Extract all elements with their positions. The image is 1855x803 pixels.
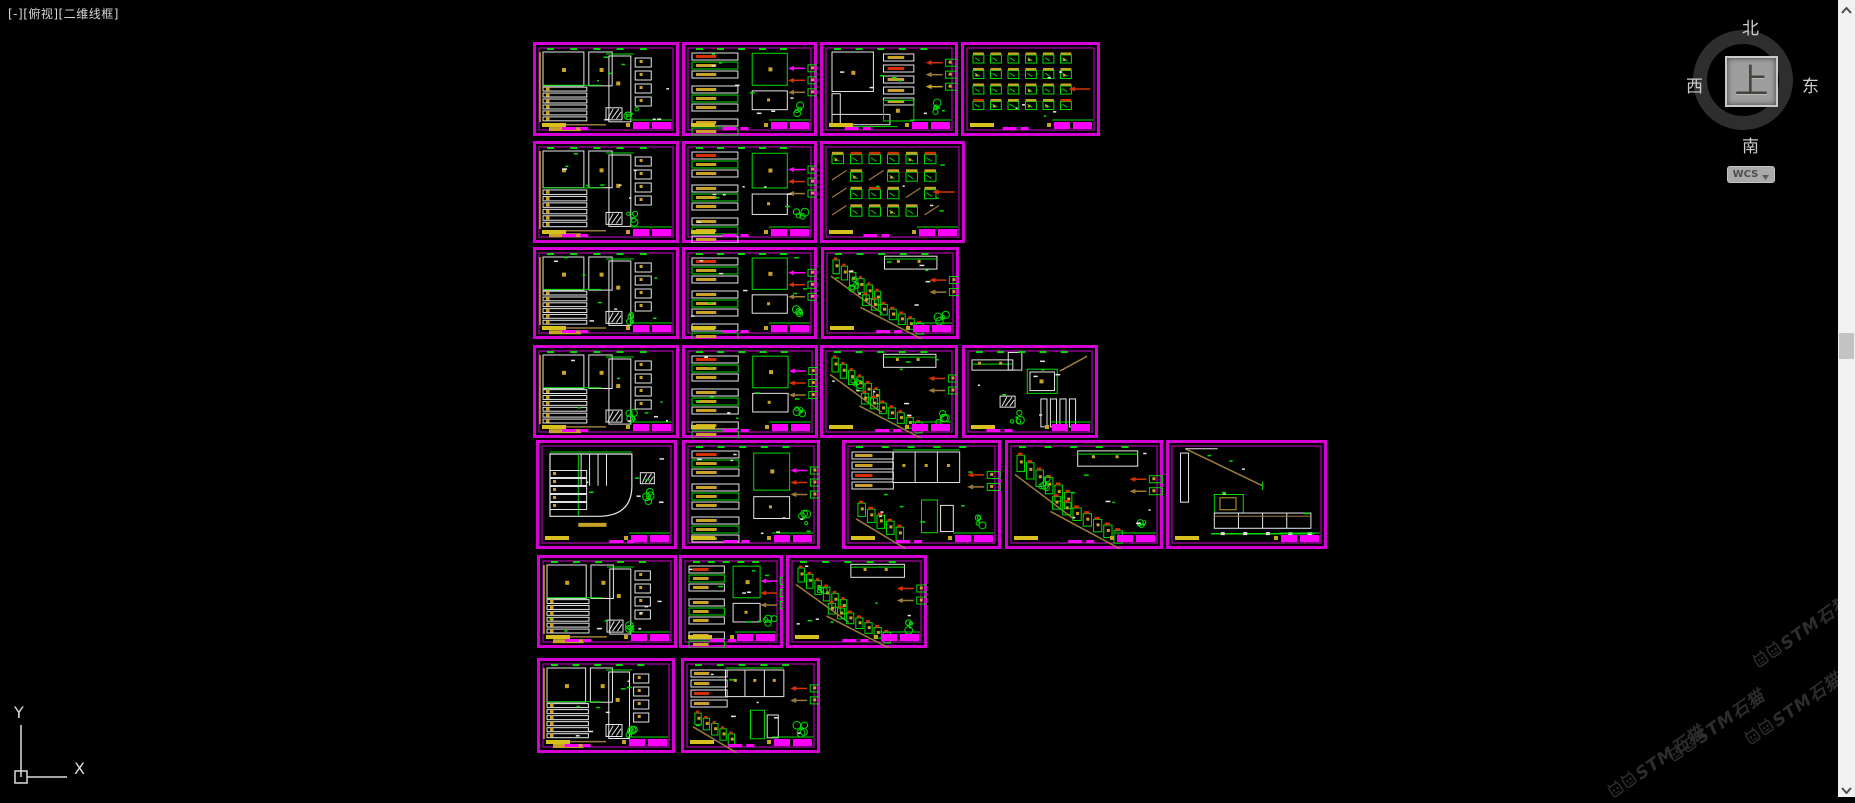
watermark: STM石猫 — [1603, 718, 1709, 803]
watermark-text: STM石猫 — [1766, 665, 1846, 731]
ucs-y-label: Y — [13, 703, 24, 722]
viewcube-north-label[interactable]: 北 — [1742, 14, 1759, 39]
viewcube-top-face[interactable]: 上 — [1725, 56, 1778, 107]
viewcube-up-label: 上 — [1735, 65, 1769, 99]
chevron-down-icon — [1841, 779, 1852, 798]
vertical-scrollbar[interactable] — [1838, 0, 1855, 797]
scroll-down-button[interactable] — [1838, 780, 1855, 797]
scroll-up-button[interactable] — [1838, 0, 1855, 17]
scrollbar-thumb[interactable] — [1839, 333, 1854, 359]
viewcube-east-label[interactable]: 东 — [1802, 72, 1819, 97]
ucs-axis-icon: Y X — [0, 690, 110, 790]
wcs-dropdown-button[interactable]: WCS — [1727, 166, 1775, 183]
wcs-label: WCS — [1733, 169, 1759, 180]
ucs-x-label: X — [74, 759, 85, 778]
viewcube[interactable]: 上 北 南 西 东 WCS — [1676, 8, 1826, 158]
watermark-layer: STM石猫STM石猫STM石猫STM石猫 — [0, 0, 1855, 797]
viewcube-west-label[interactable]: 西 — [1686, 72, 1703, 97]
viewcube-south-label[interactable]: 南 — [1742, 132, 1759, 157]
chevron-down-icon — [1762, 165, 1769, 184]
chevron-up-icon — [1841, 0, 1852, 18]
cad-model-space: [-][俯视][二维线框] STM石猫STM石猫STM石猫STM石猫 上 北 南… — [0, 0, 1855, 797]
